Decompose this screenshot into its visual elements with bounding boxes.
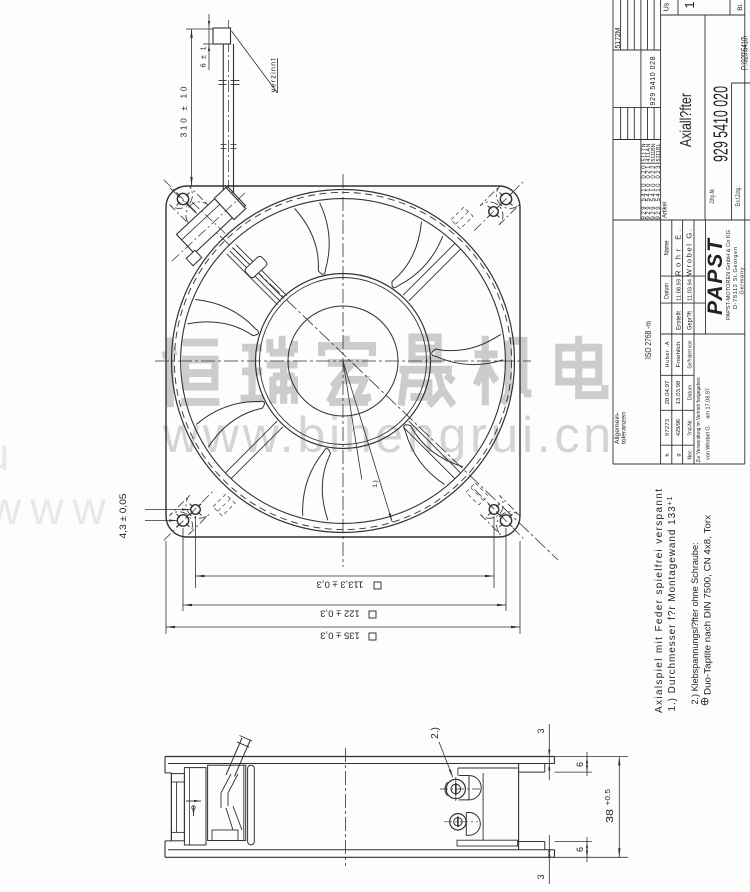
svg-text:h: h xyxy=(665,453,671,456)
svg-text:Bl.: Bl. xyxy=(737,3,744,11)
svg-text:Us: Us xyxy=(664,2,671,11)
svg-text:3: 3 xyxy=(536,874,546,879)
svg-text:4,3 ± 0,05: 4,3 ± 0,05 xyxy=(118,494,128,539)
svg-text:1.) Durchmesser f?r Montagewan: 1.) Durchmesser f?r Montagewand 133+1 xyxy=(667,496,678,711)
svg-text:von Wrobel G. am 17.08.97: von Wrobel G. am 17.08.97 xyxy=(706,388,712,460)
svg-text:1.): 1.) xyxy=(372,480,379,488)
svg-text:Nec: Nec xyxy=(687,450,693,459)
svg-text:5172M: 5172M xyxy=(615,27,622,48)
svg-text:Zchg.-Nr.: Zchg.-Nr. xyxy=(709,188,716,203)
svg-text:Artikel: Artikel xyxy=(662,202,669,218)
svg-text:11.03.94: 11.03.94 xyxy=(688,279,694,301)
svg-text:ISO 2768 -m: ISO 2768 -m xyxy=(643,321,653,359)
svg-text:Allgemein-: Allgemein- xyxy=(615,412,621,444)
svg-text:Huber .A: Huber .A xyxy=(665,341,671,367)
svg-text:www.bihengrui.cn: www.bihengrui.cn xyxy=(162,407,611,463)
svg-text:929 5410 020: 929 5410 020 xyxy=(711,86,733,162)
svg-text:Erstellt: Erstellt xyxy=(677,311,683,330)
svg-text:toleranzen: toleranzen xyxy=(622,412,628,444)
svg-text:g: g xyxy=(676,453,682,456)
svg-text:1: 1 xyxy=(682,1,697,8)
svg-text:97273: 97273 xyxy=(665,419,671,436)
svg-text:Duo-Taptite nach DIN 7500, CN: Duo-Taptite nach DIN 7500, CN 4x8, Torx xyxy=(703,514,713,695)
svg-text:6: 6 xyxy=(575,762,585,767)
svg-text:u: u xyxy=(0,428,10,480)
svg-text:D-78112 St.Georgen: D-78112 St.Georgen xyxy=(733,247,739,309)
svg-text:6 ± 1: 6 ± 1 xyxy=(199,47,208,68)
svg-text:Ge?ndert von: Ge?ndert von xyxy=(687,340,693,368)
svg-text:Name: Name xyxy=(665,240,671,256)
svg-text:28.04.97: 28.04.97 xyxy=(665,381,671,405)
svg-text:6: 6 xyxy=(575,847,585,852)
svg-text:113,3 ± 0,3: 113,3 ± 0,3 xyxy=(317,579,364,590)
svg-text:Datum: Datum xyxy=(687,385,693,400)
svg-text:13.03.98: 13.03.98 xyxy=(676,381,682,405)
svg-text:122 ± 0,3: 122 ± 0,3 xyxy=(320,608,360,619)
svg-text:verzinnt: verzinnt xyxy=(269,58,278,93)
svg-text:135 ± 0,3: 135 ± 0,3 xyxy=(320,630,360,641)
svg-text:?nd-Nr.: ?nd-Nr. xyxy=(687,419,693,436)
svg-text:Froehlich: Froehlich xyxy=(676,342,682,368)
svg-text:3: 3 xyxy=(536,728,546,733)
svg-text:Gepr?ft: Gepr?ft xyxy=(688,311,694,330)
svg-text:Axiall?fter: Axiall?fter xyxy=(678,93,695,147)
svg-text:2.): 2.) xyxy=(430,727,441,739)
svg-text:429/96: 429/96 xyxy=(676,419,682,436)
svg-text:PAPST: PAPST xyxy=(704,237,727,315)
svg-text:P:\929\5410\: P:\929\5410\ xyxy=(739,36,749,70)
svg-text:Zur Verwendung im Vertrieb fre: Zur Verwendung im Vertrieb freigegeben xyxy=(696,378,702,463)
svg-text:11.08.93: 11.08.93 xyxy=(677,279,683,301)
svg-text:929 5410 028: 929 5410 028 xyxy=(650,56,657,105)
svg-text:Germany: Germany xyxy=(740,267,746,294)
svg-text:5111BL: 5111BL xyxy=(656,144,662,162)
svg-text:Datum: Datum xyxy=(665,283,671,299)
svg-text:2.) Klebspannungsl?fter ohne S: 2.) Klebspannungsl?fter ohne Schraube: xyxy=(690,543,700,705)
svg-text:Ers.f.Zchg.:: Ers.f.Zchg.: xyxy=(735,185,742,206)
svg-text:PAPST-MOTOREN GmbH & Co KG: PAPST-MOTOREN GmbH & Co KG xyxy=(726,230,732,320)
svg-text:www: www xyxy=(0,482,115,534)
